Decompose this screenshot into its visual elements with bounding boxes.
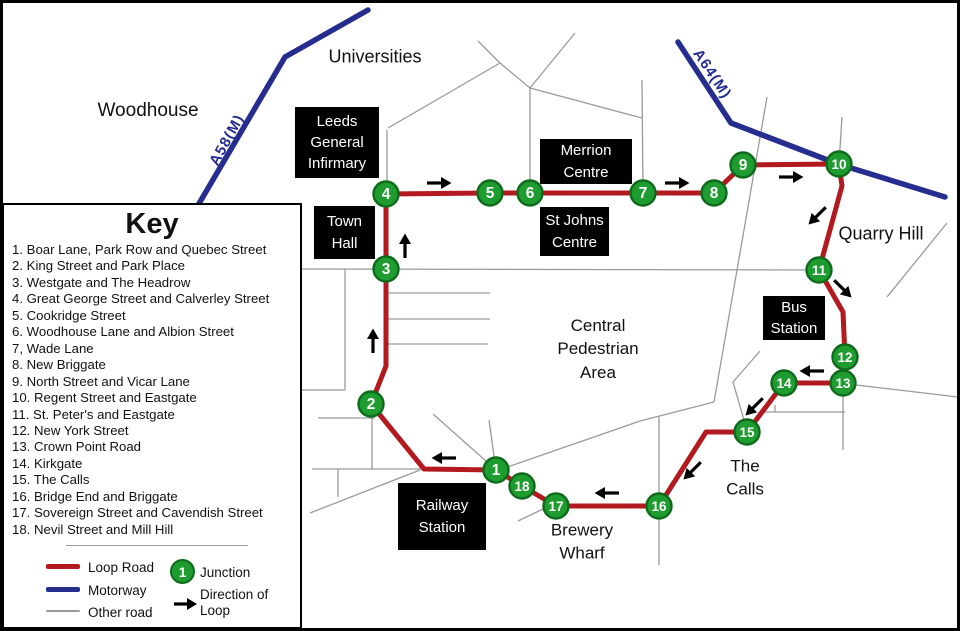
junction-marker-12: 12 xyxy=(833,345,858,370)
junction-symbol-icon: 1 xyxy=(170,559,195,584)
key-item: 3. Westgate and The Headrow xyxy=(4,275,300,291)
svg-text:15: 15 xyxy=(739,425,755,440)
junction-marker-4: 4 xyxy=(374,182,399,207)
svg-text:2: 2 xyxy=(367,396,376,413)
svg-text:13: 13 xyxy=(835,376,851,391)
key-item: 14. Kirkgate xyxy=(4,456,300,472)
junction-marker-7: 7 xyxy=(631,181,656,206)
svg-text:11: 11 xyxy=(812,263,827,278)
key-item: 11. St. Peter's and Eastgate xyxy=(4,407,300,423)
key-item: 13. Crown Point Road xyxy=(4,439,300,455)
junction-marker-13: 13 xyxy=(831,371,856,396)
junction-marker-3: 3 xyxy=(374,257,399,282)
svg-text:4: 4 xyxy=(382,186,391,203)
area-label-woodhouse: Woodhouse xyxy=(97,98,198,124)
area-label-quarry-hill: Quarry Hill xyxy=(838,222,923,247)
junction-marker-2: 2 xyxy=(359,392,384,417)
other-road-path xyxy=(496,402,714,471)
key-item: 9. North Street and Vicar Lane xyxy=(4,374,300,390)
svg-text:12: 12 xyxy=(837,350,852,365)
other-road-path xyxy=(733,351,760,420)
other-road-path xyxy=(642,80,643,193)
svg-text:9: 9 xyxy=(739,157,748,174)
junction-marker-10: 10 xyxy=(827,152,852,177)
junction-marker-8: 8 xyxy=(702,181,727,206)
key-item: 5. Cookridge Street xyxy=(4,308,300,324)
key-item: 1. Boar Lane, Park Row and Quebec Street xyxy=(4,242,300,258)
svg-text:18: 18 xyxy=(514,479,530,494)
area-label-brewery-wharf: BreweryWharf xyxy=(551,519,613,566)
direction-arrow xyxy=(595,487,620,499)
direction-arrow xyxy=(804,203,830,229)
svg-text:1: 1 xyxy=(492,462,501,479)
direction-arrow xyxy=(367,329,379,354)
place-box-merrion-centre: MerrionCentre xyxy=(540,139,632,184)
key-item: 8. New Briggate xyxy=(4,357,300,373)
key-item: 16. Bridge End and Briggate xyxy=(4,489,300,505)
svg-text:14: 14 xyxy=(776,376,792,391)
junction-marker-18: 18 xyxy=(510,474,535,499)
area-label-central-pedestrian-area: CentralPedestrianArea xyxy=(557,314,638,384)
svg-text:3: 3 xyxy=(382,261,391,278)
svg-text:10: 10 xyxy=(831,157,846,172)
key-item: 12. New York Street xyxy=(4,423,300,439)
direction-arrow xyxy=(665,177,690,189)
place-box-town-hall: TownHall xyxy=(314,206,375,259)
legend-direction-label: Direction of Loop xyxy=(200,587,288,619)
junction-marker-17: 17 xyxy=(544,494,569,519)
svg-text:8: 8 xyxy=(710,185,719,202)
other-road-path xyxy=(518,508,545,521)
direction-arrow xyxy=(399,234,411,259)
key-item: 17. Sovereign Street and Cavendish Stree… xyxy=(4,505,300,521)
key-item: 2. King Street and Park Place xyxy=(4,258,300,274)
legend-separator xyxy=(66,545,248,546)
key-item: 10. Regent Street and Eastgate xyxy=(4,390,300,406)
junction-marker-9: 9 xyxy=(731,153,756,178)
junction-marker-14: 14 xyxy=(772,371,797,396)
junction-marker-5: 5 xyxy=(478,181,503,206)
place-box-bus-station: BusStation xyxy=(763,296,825,340)
legend-other-road-label: Other road xyxy=(88,605,153,621)
key-item: 7, Wade Lane xyxy=(4,341,300,357)
other-road-path xyxy=(478,33,575,88)
legend-junction-label: Junction xyxy=(200,565,250,581)
direction-arrow xyxy=(432,452,457,464)
key-list: 1. Boar Lane, Park Row and Quebec Street… xyxy=(4,242,300,538)
other-road-swatch-icon xyxy=(46,610,80,612)
key-item: 15. The Calls xyxy=(4,472,300,488)
other-road-path xyxy=(856,385,958,397)
svg-text:16: 16 xyxy=(651,499,667,514)
other-road-path xyxy=(530,88,642,118)
motorway-path-a64m xyxy=(678,42,945,197)
place-box-railway-station: RailwayStation xyxy=(398,483,486,550)
key-item: 6. Woodhouse Lane and Albion Street xyxy=(4,324,300,340)
junction-marker-16: 16 xyxy=(647,494,672,519)
svg-text:6: 6 xyxy=(526,185,535,202)
place-box-st-johns-centre: St JohnsCentre xyxy=(540,207,609,256)
other-road-path xyxy=(388,63,500,128)
legend-motorway-label: Motorway xyxy=(88,583,147,599)
place-box-leeds-general-infirmary: LeedsGeneralInfirmary xyxy=(295,107,379,178)
loop-road-map: 123456789101112131415161718 WoodhouseUni… xyxy=(0,0,960,631)
loop-road-swatch-icon xyxy=(46,564,80,569)
svg-text:7: 7 xyxy=(639,185,648,202)
motorway-swatch-icon xyxy=(46,587,80,592)
junction-marker-15: 15 xyxy=(735,420,760,445)
area-label-universities: Universities xyxy=(328,45,421,70)
key-item: 18. Nevil Street and Mill Hill xyxy=(4,522,300,538)
junction-marker-1: 1 xyxy=(484,458,509,483)
key-item: 4. Great George Street and Calverley Str… xyxy=(4,291,300,307)
direction-arrow-icon xyxy=(170,595,200,613)
direction-arrow xyxy=(427,177,452,189)
junction-marker-6: 6 xyxy=(518,181,543,206)
direction-arrow xyxy=(800,365,825,377)
svg-text:5: 5 xyxy=(486,185,495,202)
direction-arrow xyxy=(779,171,804,183)
junction-marker-11: 11 xyxy=(807,258,832,283)
key-panel: Key 1. Boar Lane, Park Row and Quebec St… xyxy=(2,203,302,629)
legend-loop-road-label: Loop Road xyxy=(88,560,154,576)
svg-text:17: 17 xyxy=(548,499,563,514)
area-label-the-calls: TheCalls xyxy=(726,455,764,502)
key-title: Key xyxy=(4,207,300,241)
other-road-path xyxy=(714,97,767,402)
